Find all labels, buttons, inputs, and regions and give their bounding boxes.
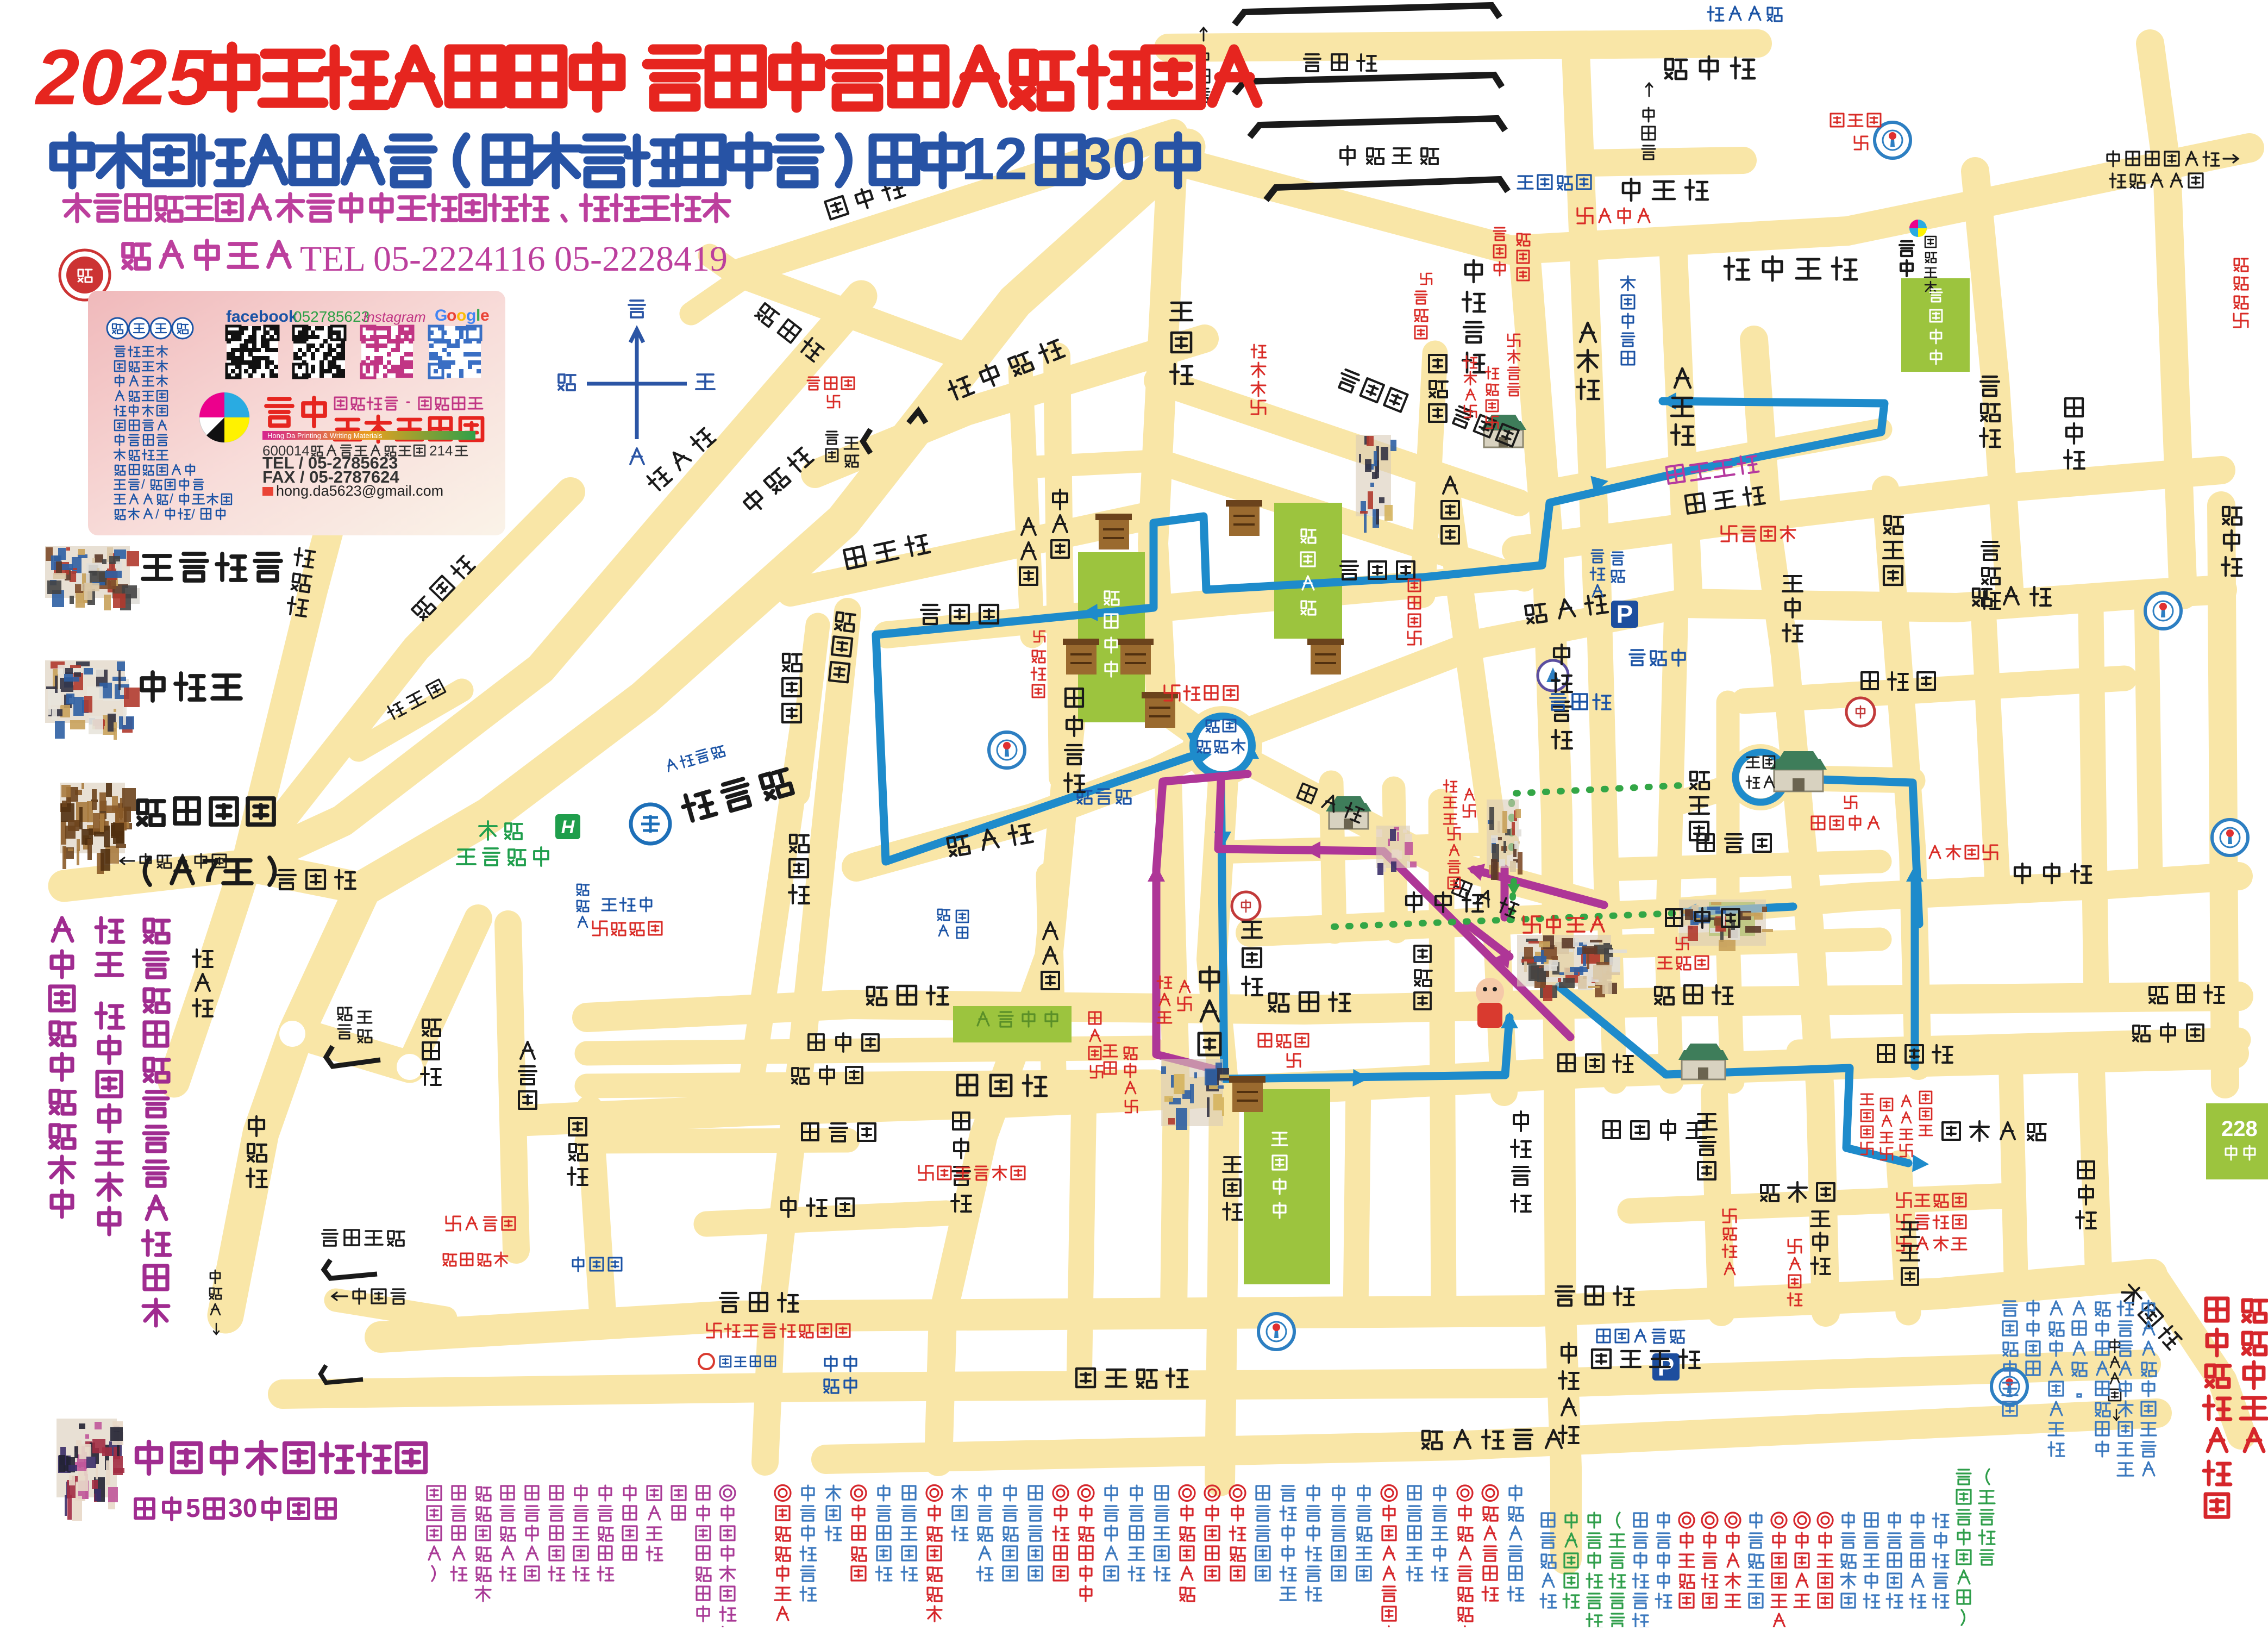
svg-text:H: H xyxy=(561,817,575,838)
svg-text:12: 12 xyxy=(961,126,1028,192)
svg-text:o: o xyxy=(447,307,456,324)
svg-text:5: 5 xyxy=(186,1494,201,1523)
svg-text:7: 7 xyxy=(201,852,220,890)
svg-text:e: e xyxy=(480,307,490,324)
svg-text:/: / xyxy=(141,477,145,492)
svg-text:052785623: 052785623 xyxy=(293,308,369,325)
svg-text:TEL 05-2224116 05-2228419: TEL 05-2224116 05-2228419 xyxy=(300,239,728,279)
svg-text:G: G xyxy=(435,307,447,324)
svg-text:Hong Da Printing & Writing Mat: Hong Da Printing & Writing Materials xyxy=(267,432,383,440)
svg-text:30: 30 xyxy=(228,1494,257,1523)
svg-text:Instagram: Instagram xyxy=(363,309,426,325)
svg-text:30: 30 xyxy=(1079,126,1145,192)
svg-text:g: g xyxy=(466,307,476,324)
svg-text:2025: 2025 xyxy=(34,33,212,121)
svg-text:o: o xyxy=(456,307,466,324)
svg-text:hong.da5623@gmail.com: hong.da5623@gmail.com xyxy=(276,483,443,499)
svg-text:214: 214 xyxy=(429,442,453,459)
svg-text:/: / xyxy=(191,507,195,522)
svg-text:P: P xyxy=(1617,600,1633,628)
svg-text:228: 228 xyxy=(2221,1117,2258,1141)
svg-text:facebook: facebook xyxy=(226,308,298,326)
svg-text:/: / xyxy=(170,491,173,507)
svg-text:/: / xyxy=(155,507,159,522)
